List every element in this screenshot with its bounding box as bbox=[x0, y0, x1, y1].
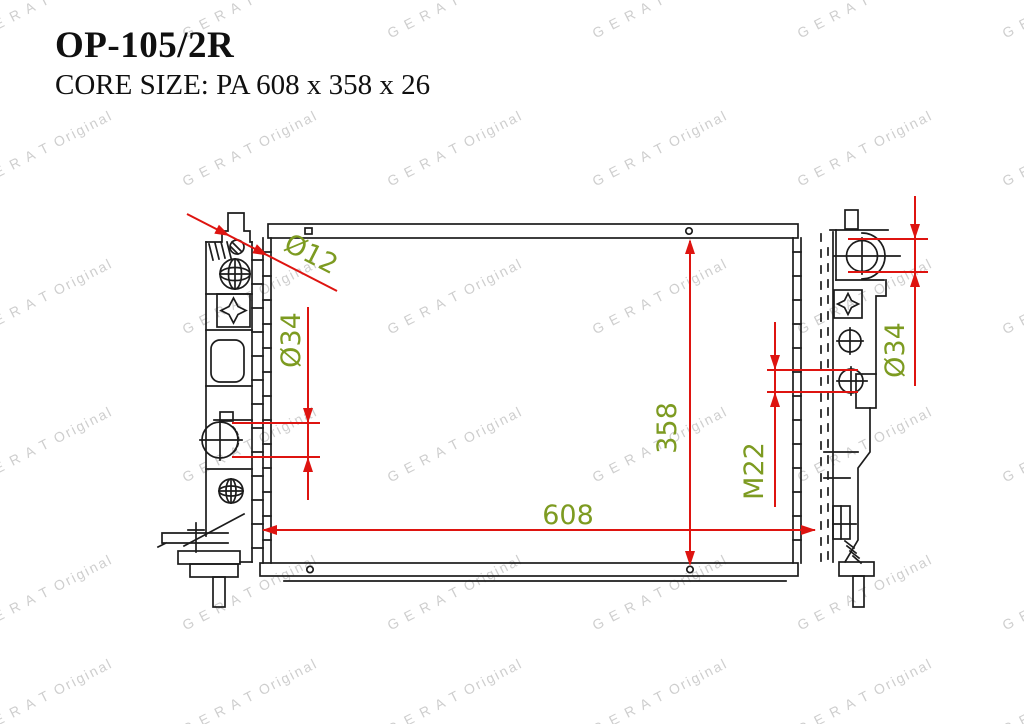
radiator-core bbox=[260, 224, 801, 581]
bottom-flange bbox=[839, 562, 874, 576]
top-band-square-hole bbox=[305, 228, 312, 234]
dim-thread-label: M22 bbox=[739, 442, 770, 500]
bottom-pin bbox=[853, 576, 864, 607]
left-side-plate-ticks bbox=[263, 252, 271, 540]
mount-bracket bbox=[158, 533, 228, 547]
cavity bbox=[211, 340, 244, 382]
drain-body bbox=[190, 564, 238, 577]
dim-filler-hole-label: Ø12 bbox=[279, 228, 343, 281]
dim-core-height-label: 358 bbox=[652, 402, 683, 454]
drain-plug bbox=[213, 577, 225, 607]
left-tank bbox=[158, 213, 263, 607]
taper-hatch bbox=[845, 541, 861, 563]
dim-core-height bbox=[685, 239, 695, 566]
dimension-labels: Ø12 Ø34 Ø34 358 608 M22 bbox=[276, 228, 911, 531]
top-pin bbox=[845, 210, 858, 229]
dim-left-port-label: Ø34 bbox=[276, 312, 307, 368]
right-tank bbox=[821, 210, 900, 607]
dim-core-width-label: 608 bbox=[542, 500, 594, 531]
left-tank-crimp bbox=[252, 260, 263, 548]
star-mark bbox=[838, 294, 859, 315]
radiator-drawing: Ø12 Ø34 Ø34 358 608 M22 bbox=[0, 0, 1024, 724]
core-top-band bbox=[268, 224, 798, 238]
right-side-plate-ticks bbox=[793, 252, 801, 540]
dim-core-width bbox=[262, 525, 816, 535]
drain-flange bbox=[178, 551, 240, 564]
core-bottom-band bbox=[260, 563, 798, 576]
dim-right-port-label: Ø34 bbox=[880, 322, 911, 378]
top-band-round-hole bbox=[686, 228, 692, 234]
star-mark bbox=[221, 298, 246, 323]
page: G E R A T OriginalG E R A T OriginalG E … bbox=[0, 0, 1024, 724]
top-hatch bbox=[209, 242, 231, 260]
bottom-band-hole-right bbox=[687, 566, 693, 572]
bottom-band-hole-left bbox=[307, 566, 313, 572]
